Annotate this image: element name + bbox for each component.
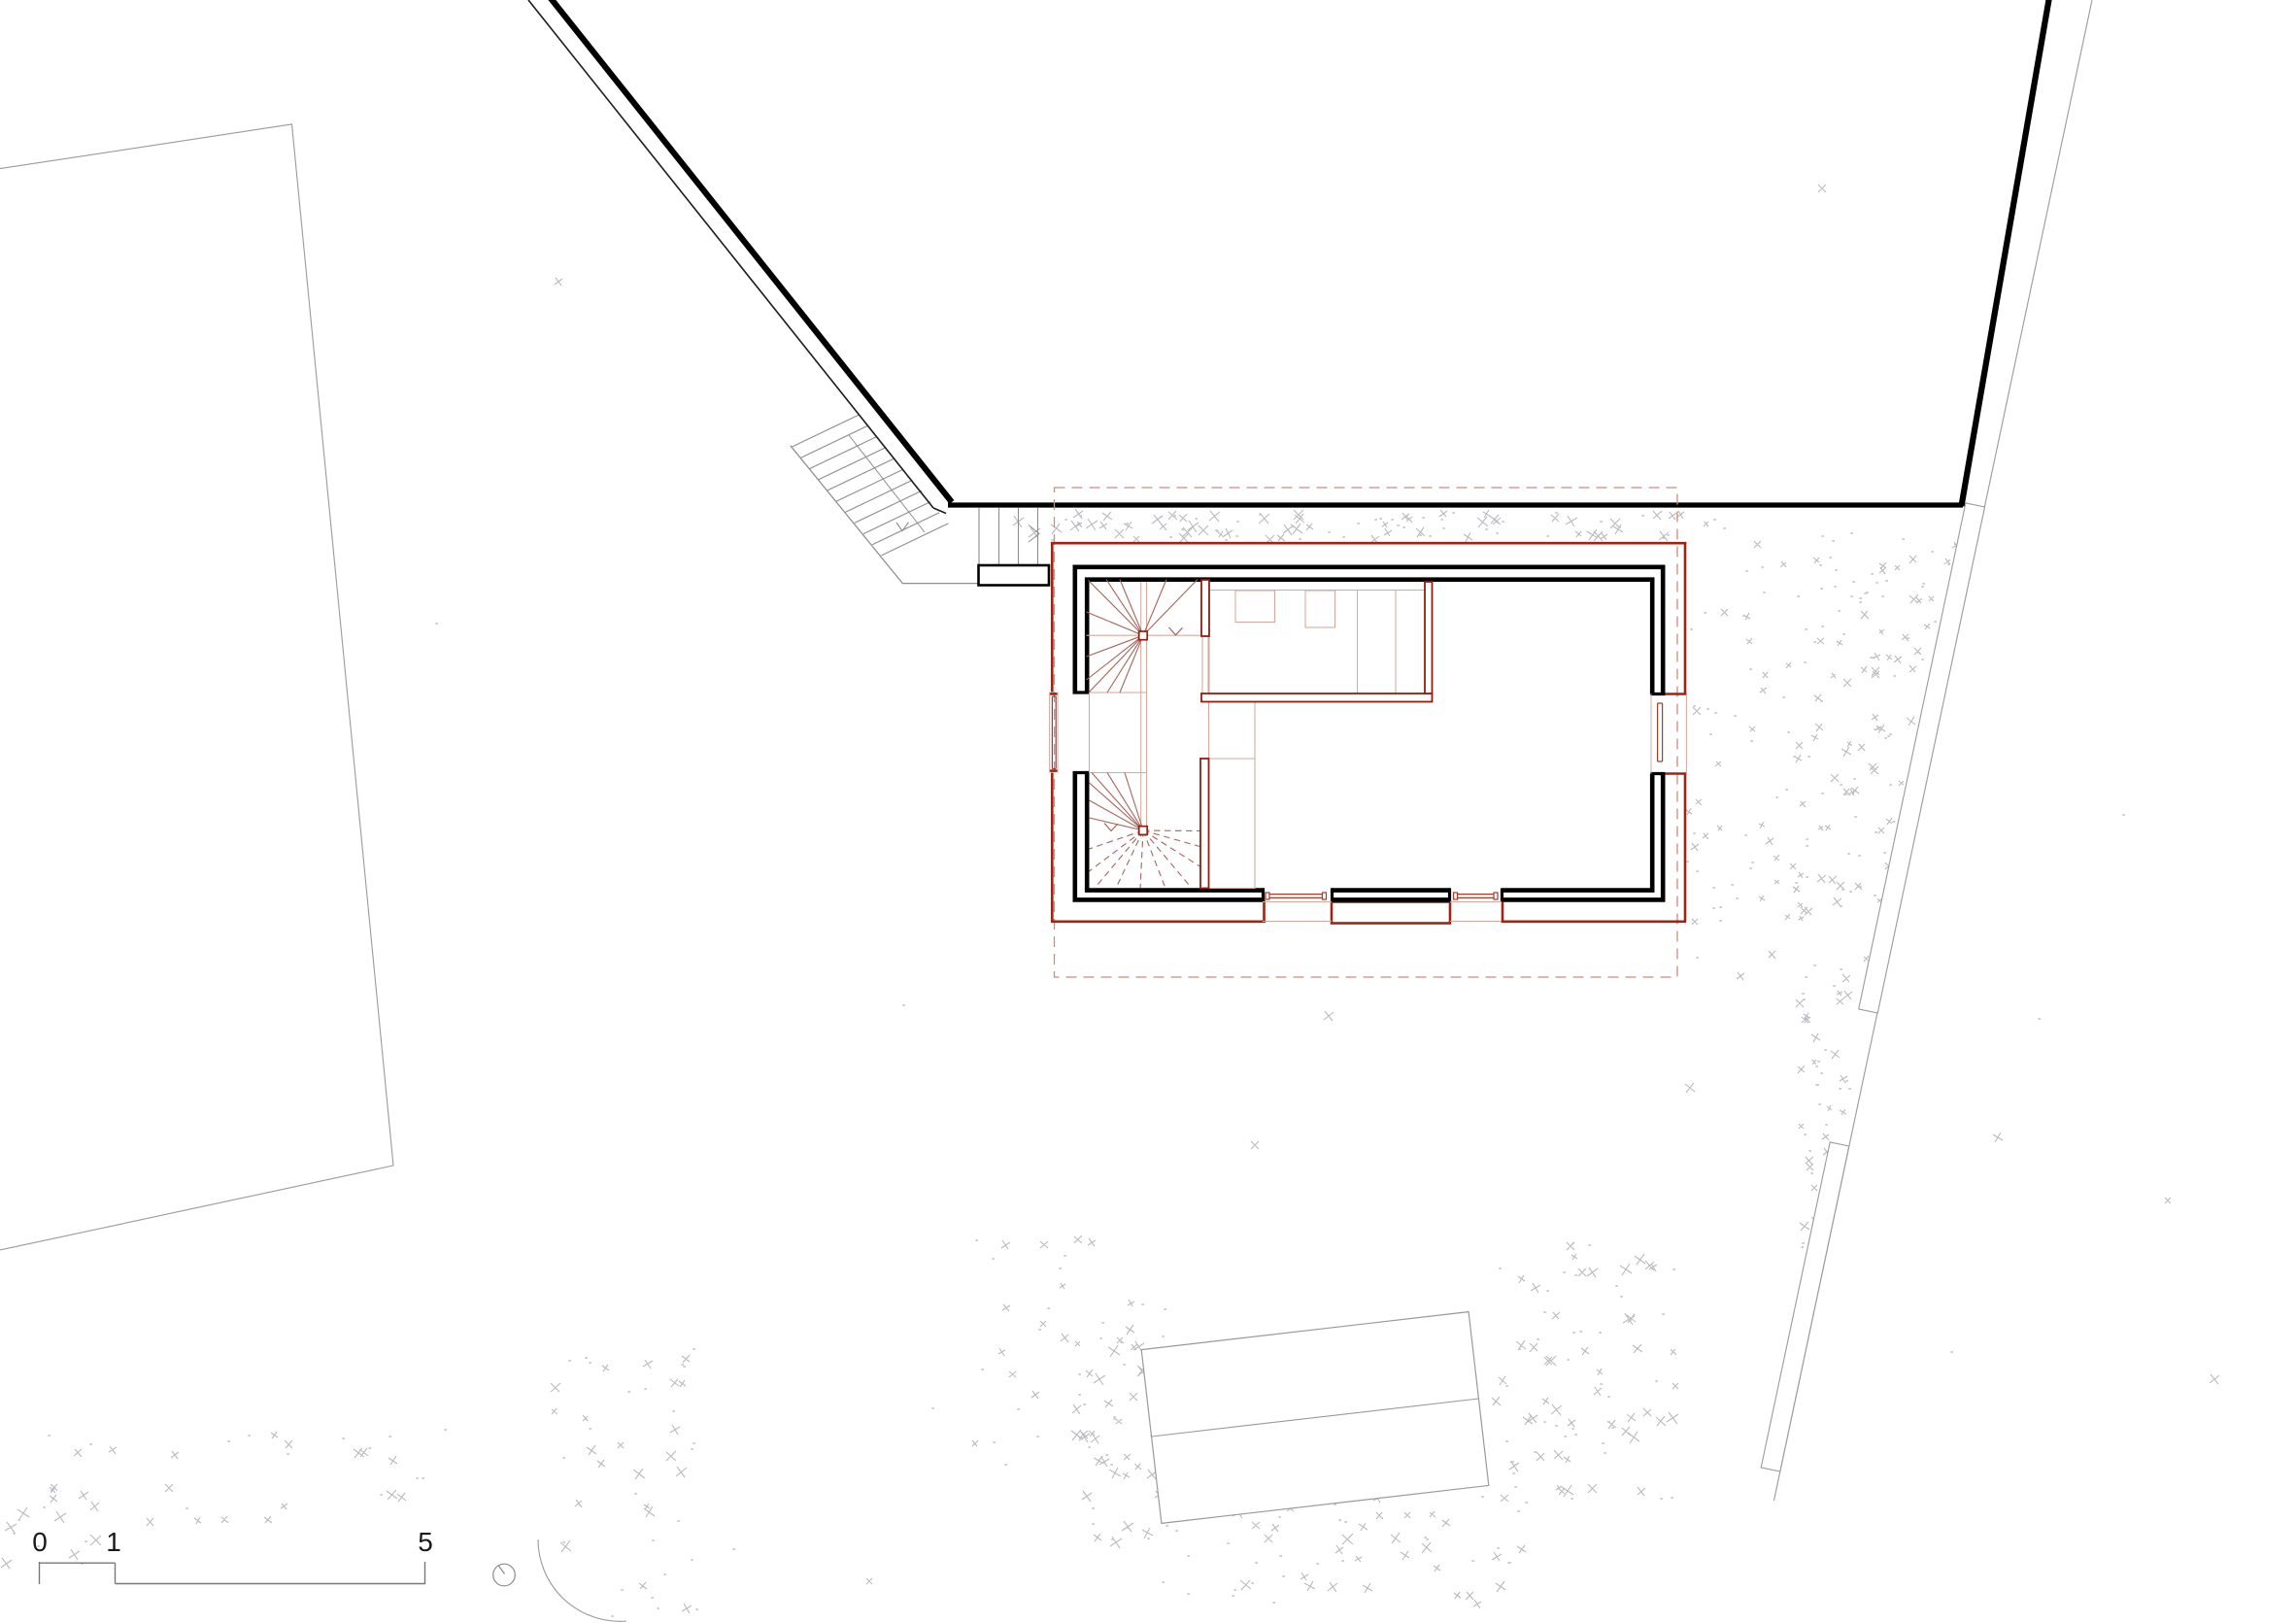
svg-text:1: 1: [106, 1527, 121, 1557]
svg-text:0: 0: [32, 1527, 48, 1557]
svg-text:5: 5: [418, 1527, 433, 1557]
